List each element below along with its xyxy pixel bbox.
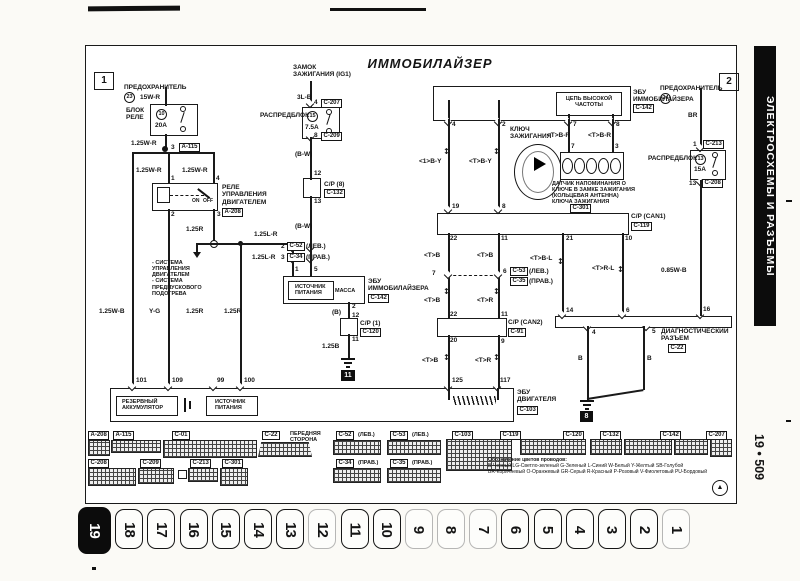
- pin-label: 9: [501, 338, 505, 345]
- connector-tag: A-115: [179, 143, 200, 152]
- wire-label: <T>B-R: [547, 132, 570, 139]
- strip-connector-tag: C-01: [172, 431, 190, 440]
- wire: [132, 152, 214, 154]
- wire: [498, 119, 500, 213]
- inline-connector-dashed-link: [448, 275, 498, 276]
- cp-can1-box: [437, 213, 629, 235]
- chapter-tab-10[interactable]: 10: [373, 509, 401, 549]
- relay-block-box: [150, 104, 198, 136]
- wire-label: B: [647, 355, 652, 362]
- battery-symbol-icon: [189, 401, 191, 409]
- relay-off-label: OFF: [203, 199, 213, 205]
- strip-connector-tag: C-209: [140, 459, 161, 468]
- pin-label: 11: [352, 336, 359, 343]
- strip-connector-body: [624, 439, 672, 455]
- cp-label: C/P (CAN1): [631, 213, 666, 220]
- section-marker-1: 1: [94, 72, 114, 90]
- wire-direction-arrow-icon: ↕: [443, 354, 450, 362]
- wire-label: <T>B: [422, 357, 438, 364]
- wire-label: 1.25W-B: [99, 308, 125, 315]
- scan-mark: [786, 420, 791, 422]
- pin-label: 13: [689, 180, 696, 187]
- publisher-logo-icon: ▲: [712, 480, 728, 496]
- strip-connector-note: (ЛЕВ.): [358, 432, 375, 438]
- chapter-tab-2[interactable]: 2: [630, 509, 658, 549]
- wire-label: 1.25R: [186, 308, 203, 315]
- strip-connector-tag: C-213: [190, 459, 211, 468]
- pin-label: 6: [503, 268, 507, 275]
- strip-connector-tag: C-34: [336, 459, 354, 468]
- wire-label: 1.25W-R: [136, 167, 162, 174]
- pin-label: 3: [171, 144, 175, 151]
- pin-label: 1: [295, 266, 299, 273]
- strip-connector-tag: C-52: [336, 431, 354, 440]
- ground-ref-badge: 8: [580, 411, 593, 422]
- pin-label: 8: [314, 132, 318, 139]
- wire-direction-arrow-icon: ↕: [443, 288, 450, 296]
- side-note: (ПРАВ.): [529, 278, 553, 285]
- key-sensor-label: ДАТЧИК НАПОМИНАНИЯ О КЛЮЧЕ В ЗАМКЕ ЗАЖИГ…: [552, 181, 635, 206]
- pin-label: 7: [432, 270, 436, 277]
- diagnostic-connector-label: ДИАГНОСТИЧЕСКИЙ РАЗЪЕМ: [661, 328, 729, 343]
- tab-label: 3: [604, 525, 621, 532]
- dist-block-box: [690, 150, 726, 180]
- ecu-label: ЭБУ ДВИГАТЕЛЯ: [517, 389, 556, 404]
- relay-block-label: БЛОК РЕЛЕ: [126, 107, 144, 122]
- strip-connector-tag: A-115: [113, 431, 134, 440]
- pin-label: 100: [244, 377, 255, 384]
- pin-label: 22: [450, 235, 457, 242]
- cp-junction-box: [303, 178, 321, 198]
- pin-label: 19: [452, 203, 459, 210]
- pin-label: 125: [452, 377, 463, 384]
- connector-tag: C-103: [517, 406, 538, 415]
- wire: [168, 152, 170, 184]
- coil-loop-icon: [562, 158, 573, 174]
- strip-connector-body: [258, 442, 312, 457]
- connector-tag: C-53: [510, 267, 528, 276]
- tab-label: 14: [249, 522, 266, 537]
- chapter-tab-18[interactable]: 18: [115, 509, 143, 549]
- chapter-tab-1[interactable]: 1: [662, 509, 690, 549]
- wire: [497, 388, 499, 400]
- relay-dashed-link: [170, 195, 204, 196]
- pin-label: 3: [615, 143, 619, 150]
- coil-loop-icon: [586, 158, 597, 174]
- strip-connector-note: ПЕРЕДНЯЯ СТОРОНА: [290, 431, 321, 443]
- ring-antenna-box: [560, 152, 624, 180]
- fuse-number-icon: 10: [156, 109, 167, 120]
- wire: [562, 233, 564, 316]
- pin-label: 3: [281, 254, 285, 261]
- pin-label: 4: [592, 329, 596, 336]
- chapter-tab-13[interactable]: 13: [276, 509, 304, 549]
- legend-line: BR-Коричневый O-Оранжевый GR-Серый R-Кра…: [488, 470, 732, 476]
- tab-label: 12: [314, 522, 331, 537]
- wire: [498, 100, 500, 119]
- tab-label: 15: [217, 522, 234, 537]
- resistor-icon: [452, 396, 496, 405]
- branch-arrow-icon: [193, 252, 201, 258]
- tab-label: 13: [282, 522, 299, 537]
- wire-label: 0.85W-B: [661, 267, 687, 274]
- wire: [622, 233, 624, 316]
- tab-label: 2: [636, 525, 653, 532]
- tab-label: 18: [121, 522, 138, 537]
- relay-coil-icon: [157, 187, 170, 203]
- wire: [348, 334, 350, 358]
- strip-connector-body: [111, 440, 161, 453]
- wire: [310, 196, 312, 276]
- strip-connector-tag: C-119: [500, 431, 521, 440]
- wire: [213, 209, 215, 244]
- wire-label: <T>B-R: [588, 132, 611, 139]
- cp-label: C/P (1): [360, 320, 380, 327]
- hf-circuit-label: ЦЕПЬ ВЫСОКОЙ ЧАСТОТЫ: [562, 96, 616, 108]
- pin-label: 8: [502, 203, 506, 210]
- coil-loop-icon: [574, 158, 585, 174]
- pin-label: 13: [314, 198, 321, 205]
- wire-label: <T>R: [477, 297, 493, 304]
- chapter-tab-19[interactable]: 19: [78, 507, 111, 554]
- wire-label: 1.25R: [186, 226, 203, 233]
- strip-small-square: [178, 470, 187, 479]
- wire-label: <T>R-L: [592, 265, 614, 272]
- wire-label: BR: [688, 112, 697, 119]
- pin-label: 1: [171, 175, 175, 182]
- strip-connector-note: (ЛЕВ.): [412, 432, 429, 438]
- chapter-tab-6[interactable]: 6: [501, 509, 529, 549]
- coil-loop-icon: [610, 158, 621, 174]
- chapter-tab-5[interactable]: 5: [534, 509, 562, 549]
- strip-connector-body: [163, 440, 257, 458]
- wire-label: <T>B-Y: [469, 158, 492, 165]
- pin-label: 5: [314, 266, 318, 273]
- relay-label: РЕЛЕ УПРАВЛЕНИЯ ДВИГАТЕЛЕМ: [222, 184, 267, 206]
- cp-label: C/P (CAN2): [508, 319, 543, 326]
- wire: [213, 152, 215, 184]
- wire-label: 15W-R: [140, 94, 160, 101]
- tab-label: 11: [346, 522, 363, 536]
- pin-label: 7: [573, 121, 577, 128]
- connector-tag: C-35: [510, 277, 528, 286]
- chapter-tab-bar: 19 18 17 16 15 14 13 12 11 10 9 8 7 6 5 …: [78, 509, 695, 554]
- page-number: 19 • 509: [752, 434, 766, 480]
- wire-direction-arrow-icon: ↕: [557, 258, 564, 266]
- tab-label: 10: [378, 522, 395, 537]
- wire: [587, 326, 589, 400]
- strip-connector-body: [674, 439, 708, 455]
- ground-icon: [583, 404, 591, 406]
- fuse-right-number-icon: 24: [660, 93, 671, 104]
- strip-connector-body: [710, 439, 732, 457]
- strip-connector-body: [520, 439, 586, 455]
- wire: [700, 180, 702, 316]
- manual-page: { "chrome":{"title":"ИММОБИЛАЙЗЕР","side…: [0, 0, 800, 581]
- ground-icon: [585, 408, 589, 410]
- fuse-amp: 20A: [155, 122, 167, 129]
- wire-label: 1.25W-R: [182, 167, 208, 174]
- strip-connector-tag: C-132: [600, 431, 621, 440]
- side-note: (ЛЕВ.): [306, 243, 326, 250]
- section-marker-1-label: 1: [101, 75, 107, 86]
- strip-connector-body: [88, 468, 136, 486]
- strip-connector-body: [333, 440, 381, 455]
- pin-label: 1: [693, 141, 697, 148]
- ground-ref-badge: 11: [341, 370, 355, 381]
- coil-loop-icon: [598, 158, 609, 174]
- wire-direction-arrow-icon: ↕: [617, 266, 624, 274]
- wire-label: Y-G: [149, 308, 160, 315]
- ignition-switch-label: ЗАМОК ЗАЖИГАНИЯ (IG1): [293, 64, 351, 79]
- pin-label: 109: [172, 377, 183, 384]
- chapter-tab-7[interactable]: 7: [469, 509, 497, 549]
- strip-connector-body: [88, 440, 110, 456]
- pin-label: 16: [703, 306, 710, 313]
- connector-tag: C-34: [287, 253, 305, 262]
- pin-label: 12: [314, 170, 321, 177]
- connector-tag: C-52: [287, 242, 305, 251]
- fuse-left-number-icon: 23: [124, 92, 135, 103]
- wire-direction-arrow-icon: ↕: [493, 288, 500, 296]
- strip-connector-tag: C-208: [88, 459, 109, 468]
- wire: [448, 100, 450, 119]
- power-source-label: ИСТОЧНИК ПИТАНИЯ: [215, 399, 245, 411]
- connector-tag: C-208: [702, 179, 723, 188]
- wire-label: 1.25R: [224, 308, 241, 315]
- cp-label: C/P (8): [324, 181, 344, 188]
- tab-label: 8: [443, 525, 460, 532]
- connector-tag: C-120: [360, 328, 381, 337]
- side-section-tab[interactable]: ЭЛЕКТРОСХЕМЫ И РАЗЪЕМЫ: [754, 46, 776, 326]
- wire-label: <T>R: [475, 357, 491, 364]
- ground-icon: [341, 358, 355, 360]
- wire: [310, 137, 312, 180]
- strip-connector-body: [138, 468, 174, 484]
- chapter-tab-3[interactable]: 3: [598, 509, 626, 549]
- wire-label: <T>B: [424, 252, 440, 259]
- fuse-right-text: ПРЕДОХРАНИТЕЛЬ: [660, 85, 722, 92]
- ecu-label: ЭБУ ИММОБИЛАЙЗЕРА: [368, 278, 429, 293]
- pin-label: 99: [217, 377, 224, 384]
- wire-label: 1.25W-R: [131, 140, 157, 147]
- tab-label: 9: [410, 525, 427, 532]
- wire-label: (B-W): [295, 223, 312, 230]
- wire-direction-arrow-icon: ↕: [443, 148, 450, 156]
- strip-connector-body: [387, 440, 441, 455]
- side-note: (ЛЕВ.): [529, 268, 549, 275]
- chapter-tab-15[interactable]: 15: [212, 509, 240, 549]
- fuse-symbol-icon: [711, 152, 719, 176]
- wire: [240, 243, 242, 388]
- wire: [448, 119, 450, 213]
- connector-tag: C-301: [570, 204, 591, 213]
- pin-label: 2: [281, 243, 285, 250]
- wire-label: 1.25L-R: [252, 254, 275, 261]
- pin-label: 4: [452, 121, 456, 128]
- pin-label: 101: [136, 377, 147, 384]
- relay-on-label: ON: [192, 199, 200, 205]
- wire-direction-arrow-icon: ↕: [493, 148, 500, 156]
- pin-label: 4: [216, 175, 220, 182]
- tab-label: 1: [668, 525, 685, 532]
- connector-tag: C-142: [633, 104, 654, 113]
- chapter-tab-16[interactable]: 16: [180, 509, 208, 549]
- connector-tag: A-208: [222, 208, 243, 217]
- strip-connector-tag: C-53: [390, 431, 408, 440]
- wire-direction-arrow-icon: ↕: [493, 354, 500, 362]
- wire-label: <T>B: [424, 297, 440, 304]
- strip-connector-body: [188, 468, 218, 482]
- strip-connector-tag: A-208: [88, 431, 109, 440]
- ground-icon: [344, 362, 352, 364]
- pin-label: 4: [314, 99, 318, 106]
- pin-label: 2: [171, 211, 175, 218]
- chapter-tab-17[interactable]: 17: [147, 509, 175, 549]
- strip-connector-tag: C-35: [390, 459, 408, 468]
- pin-label: 8: [616, 121, 620, 128]
- pin-label: 21: [566, 235, 573, 242]
- connector-tag: C-132: [324, 189, 345, 198]
- fuse-number-icon: 15: [307, 111, 318, 122]
- chapter-tab-14[interactable]: 14: [244, 509, 272, 549]
- chapter-tab-11[interactable]: 11: [341, 509, 369, 549]
- scan-mark: [88, 6, 180, 12]
- tab-label: 5: [539, 525, 556, 532]
- pin-label: 6: [626, 307, 630, 314]
- fuse-amp: 7.5A: [305, 124, 319, 131]
- wire: [643, 326, 645, 390]
- strip-connector-tag: C-120: [563, 431, 584, 440]
- strip-connector-body: [333, 468, 381, 483]
- connector-tag: C-22: [668, 344, 686, 353]
- tab-label: 4: [571, 525, 588, 532]
- fuse-right-label: ПРЕДОХРАНИТЕЛЬ 24: [660, 78, 722, 104]
- wire: [348, 302, 350, 318]
- strip-connector-tag: C-22: [262, 431, 280, 440]
- wire: [448, 388, 450, 400]
- scan-mark: [786, 200, 792, 202]
- tab-label: 19: [86, 523, 103, 538]
- wire: [196, 243, 213, 245]
- connector-tag: C-119: [631, 222, 652, 231]
- key-arrow-icon: [534, 157, 546, 171]
- pin-label: 20: [450, 337, 457, 344]
- chapter-tab-12[interactable]: 12: [308, 509, 336, 549]
- pin-label: 10: [625, 235, 632, 242]
- connector-tag: C-209: [321, 132, 342, 141]
- wire-label: <1>B-Y: [419, 158, 441, 165]
- pin-label: 117: [500, 377, 511, 384]
- connector-tag: C-213: [703, 140, 724, 149]
- chapter-tab-4[interactable]: 4: [566, 509, 594, 549]
- wire-label: 1.25B: [322, 343, 339, 350]
- strip-connector-body: [220, 468, 248, 486]
- backup-battery-label: РЕЗЕРВНЫЙ АККУМУЛЯТОР: [122, 399, 163, 411]
- pin-label: 2: [352, 303, 356, 310]
- key-label: КЛЮЧ ЗАЖИГАНИЯ: [510, 126, 551, 141]
- tab-label: 17: [153, 522, 170, 537]
- battery-symbol-icon: [184, 398, 186, 412]
- chapter-tab-8[interactable]: 8: [437, 509, 465, 549]
- strip-connector-note: (ПРАВ.): [412, 460, 432, 466]
- strip-connector-body: [590, 439, 622, 455]
- connector-tag: C-91: [508, 328, 526, 337]
- scan-mark: [92, 567, 96, 570]
- pin-label: 14: [566, 307, 573, 314]
- connector-tag: C-142: [368, 294, 389, 303]
- tab-label: 7: [475, 525, 492, 532]
- chapter-tab-9[interactable]: 9: [405, 509, 433, 549]
- wire: [196, 243, 198, 252]
- strip-connector-tag: C-301: [222, 459, 243, 468]
- pin-label: 3: [217, 211, 221, 218]
- logo-triangle-icon: ▲: [717, 484, 724, 491]
- wire: [132, 152, 134, 388]
- wire-label: (B): [332, 309, 341, 316]
- fuse-number-icon: 13: [695, 154, 706, 165]
- wire: [168, 209, 170, 388]
- wire-label: 1.25L-R: [254, 231, 277, 238]
- fuse-symbol-icon: [179, 106, 187, 132]
- fuse-left-text: ПРЕДОХРАНИТЕЛЬ: [124, 84, 186, 91]
- scan-mark: [330, 8, 426, 11]
- wire: [612, 119, 614, 152]
- pin-label: 7: [571, 143, 575, 150]
- wire: [700, 88, 702, 150]
- pin-label: 2: [502, 121, 506, 128]
- wire-label: <T>B-L: [530, 255, 552, 262]
- fuse-amp: 15A: [694, 166, 706, 173]
- section-marker-2-label: 2: [726, 76, 732, 87]
- wire-label: <T>B: [477, 252, 493, 259]
- strip-connector-note: (ПРАВ.): [358, 460, 378, 466]
- pin-label: 11: [501, 235, 508, 242]
- system-note: - СИСТЕМА УПРАВЛЕНИЯ ДВИГАТЕЛЕМ - СИСТЕМ…: [152, 260, 202, 297]
- power-source-label: ИСТОЧНИК ПИТАНИЯ: [295, 284, 325, 296]
- pin-label: 5: [652, 328, 656, 335]
- tab-label: 16: [185, 522, 202, 537]
- wire-label: (B-W): [295, 151, 312, 158]
- ground-icon: [580, 400, 594, 402]
- ground-icon: [346, 366, 350, 368]
- strip-connector-body: [387, 468, 441, 483]
- tab-label: 6: [507, 525, 524, 532]
- wire-label: B: [578, 355, 583, 362]
- massa-label: МАССА: [335, 288, 355, 294]
